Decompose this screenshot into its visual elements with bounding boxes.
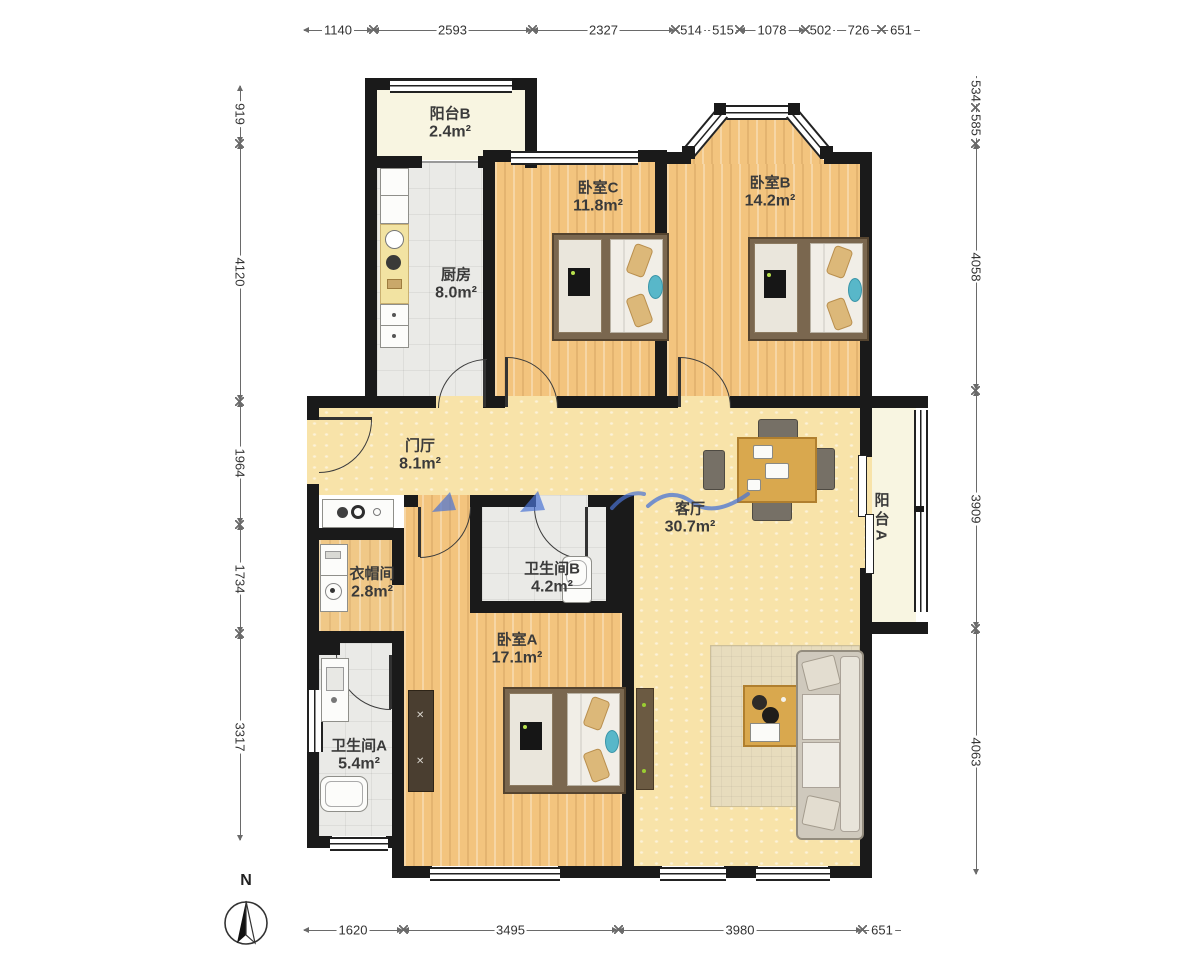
- dimension-tick: [614, 925, 623, 934]
- window: [330, 837, 388, 851]
- wall: [730, 396, 872, 408]
- dimension: 1734: [232, 524, 248, 633]
- wall: [307, 484, 319, 690]
- wall: [860, 396, 872, 457]
- coffee-table: [743, 685, 799, 747]
- room-label-bathroom-a: 卫生间A 5.4m²: [331, 735, 387, 774]
- dimension: 651: [881, 22, 921, 38]
- hall-console: [322, 499, 394, 528]
- balcony-sliding-door: [858, 455, 867, 517]
- compass-north-label: N: [240, 872, 252, 890]
- wall: [820, 146, 833, 159]
- window-mullion: [914, 506, 924, 512]
- wall: [404, 866, 432, 878]
- dimension: 4063: [968, 628, 984, 875]
- compass-icon: [218, 892, 274, 950]
- room-label-bedroom-a: 卧室A 17.1m²: [492, 629, 543, 668]
- dimension: 2327: [532, 22, 675, 38]
- dimension-tick: [971, 139, 980, 148]
- wall: [386, 836, 404, 848]
- cushion: [605, 730, 619, 753]
- wall: [724, 866, 758, 878]
- dining-chair: [703, 450, 725, 490]
- wall: [307, 752, 319, 848]
- entry-threshold: [307, 418, 319, 486]
- wall: [307, 836, 332, 848]
- dimension: 3909: [968, 390, 984, 628]
- dimension: 1964: [232, 401, 248, 524]
- wall: [307, 396, 369, 408]
- dimension-tick: [369, 25, 378, 34]
- dimension: 2593: [373, 22, 532, 38]
- wall: [365, 78, 377, 168]
- wall: [606, 495, 634, 613]
- dimension-tick: [399, 925, 408, 934]
- tv-icon: [520, 722, 542, 750]
- dimension-tick: [801, 25, 810, 34]
- wall: [714, 103, 726, 115]
- dining-table: [737, 437, 817, 503]
- window: [511, 151, 638, 165]
- wall: [307, 408, 319, 420]
- wall: [307, 528, 404, 540]
- dimension-tick: [671, 25, 680, 34]
- dimension: 1620: [303, 922, 403, 938]
- kitchen-cabinet: [380, 304, 409, 348]
- compass: N: [214, 872, 278, 952]
- dimension: 1078: [739, 22, 805, 38]
- wall: [557, 396, 678, 408]
- cushion: [648, 275, 663, 299]
- wall: [307, 631, 404, 643]
- cutting-board-icon: [387, 279, 402, 289]
- sofa-pillow: [801, 795, 840, 831]
- room-label-kitchen: 厨房 8.0m²: [435, 264, 477, 303]
- washer: [320, 544, 348, 612]
- wall: [486, 396, 505, 408]
- dimension: 3980: [618, 922, 862, 938]
- bedroom-c-bed: [552, 233, 669, 341]
- dimension: 726: [836, 22, 881, 38]
- room-label-balcony-a: 阳台A: [871, 492, 892, 545]
- bay-window: [720, 105, 794, 120]
- room-label-balcony-b: 阳台B 2.4m²: [429, 103, 471, 142]
- wall: [682, 146, 695, 159]
- dimension-tick: [971, 386, 980, 395]
- wardrobe: ✕ ✕: [408, 690, 434, 792]
- sofa-seat: [802, 694, 840, 740]
- cushion: [848, 278, 862, 302]
- room-label-bedroom-c: 卧室C 11.8m²: [573, 177, 623, 216]
- dimension-tick: [235, 139, 244, 148]
- fridge: [380, 168, 409, 224]
- bedroom-b-bed: [748, 237, 869, 341]
- sofa-back: [840, 656, 860, 832]
- sink-icon: [385, 230, 404, 249]
- cooktop-icon: [386, 255, 401, 270]
- bedroom-a-bed: [503, 687, 626, 794]
- room-label-hall: 门厅 8.1m²: [399, 435, 441, 474]
- room-label-bedroom-b: 卧室B 14.2m²: [745, 172, 796, 211]
- plate: [753, 445, 773, 459]
- dimension: 585: [968, 107, 984, 143]
- window: [660, 867, 726, 881]
- dimension-tick: [858, 925, 867, 934]
- wall: [470, 601, 618, 613]
- dimension-tick: [235, 520, 244, 529]
- wall: [860, 568, 872, 634]
- dimension-tick: [235, 397, 244, 406]
- dimension-tick: [235, 629, 244, 638]
- dimension: 651: [862, 922, 902, 938]
- wall: [558, 866, 662, 878]
- dimension-tick: [971, 103, 980, 112]
- room-label-cloakroom: 衣帽间 2.8m²: [349, 563, 394, 602]
- dimension: 3495: [403, 922, 618, 938]
- dimension: 4120: [232, 143, 248, 401]
- sofa-pillow: [801, 654, 841, 691]
- kitchen-balcony-opening: [422, 161, 478, 163]
- counter-top: [380, 224, 409, 304]
- dimension-tick: [528, 25, 537, 34]
- dimension-tick: [735, 25, 744, 34]
- sofa: [796, 650, 864, 840]
- dimension: 919: [232, 85, 248, 143]
- dimension-tick: [971, 624, 980, 633]
- dining-set: [698, 415, 838, 521]
- wall: [365, 396, 436, 408]
- wall: [307, 643, 340, 655]
- floor-plan-canvas: ✕ ✕ 阳台B: [0, 0, 1196, 960]
- window: [430, 867, 560, 881]
- sofa-seat: [802, 742, 840, 788]
- window: [756, 867, 830, 881]
- wall: [365, 156, 377, 408]
- tv-icon: [568, 268, 590, 296]
- plate: [765, 463, 789, 479]
- wall: [470, 495, 482, 613]
- plate: [747, 479, 761, 491]
- tv-cabinet: [636, 688, 654, 790]
- bathtub: [320, 776, 368, 812]
- wall: [788, 103, 800, 115]
- dimension: 4058: [968, 143, 984, 390]
- kitchen-counter: [380, 166, 409, 346]
- dimension-tick: [877, 25, 886, 34]
- wall: [404, 495, 418, 507]
- room-label-bathroom-b: 卫生间B 4.2m²: [524, 558, 580, 597]
- wall: [483, 150, 511, 162]
- dimension: 3317: [232, 633, 248, 841]
- window: [390, 79, 512, 93]
- room-label-living: 客厅 30.7m²: [665, 498, 716, 537]
- dimension: 1140: [303, 22, 373, 38]
- tv-icon: [764, 270, 786, 298]
- bathroom-a-sink: [321, 658, 349, 722]
